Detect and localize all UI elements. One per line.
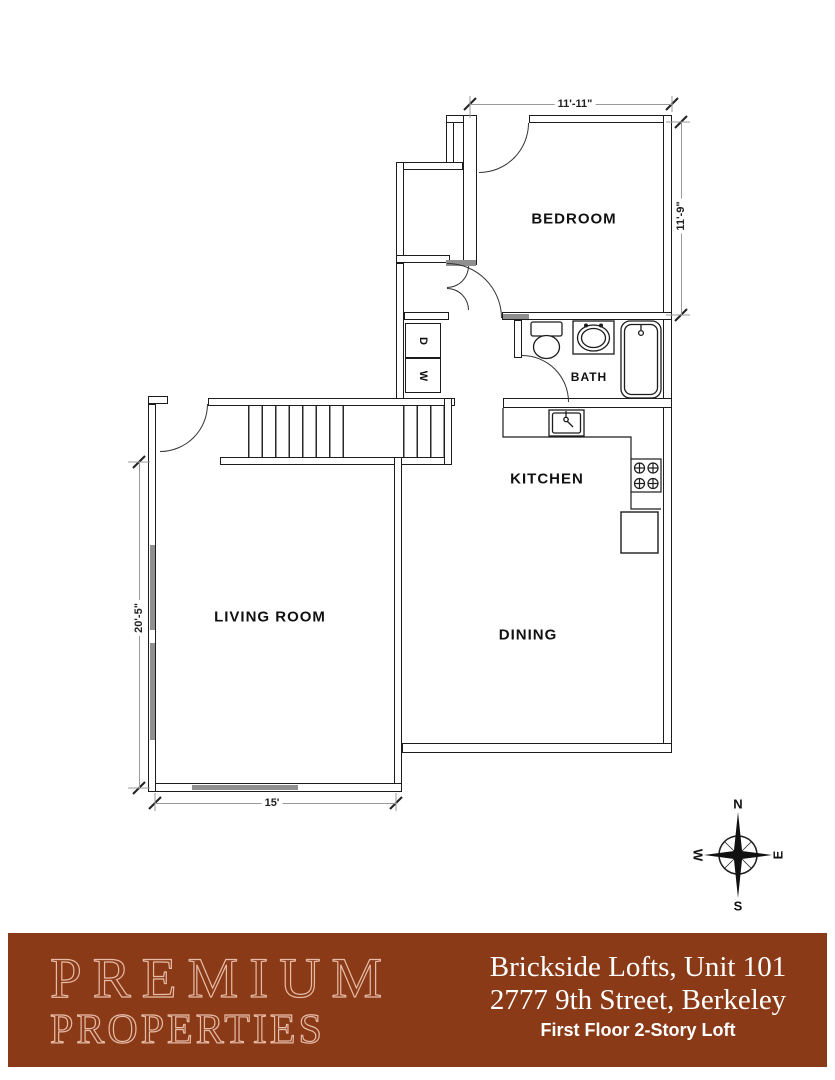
listing-subtitle: First Floor 2-Story Loft: [463, 1020, 813, 1041]
window: [192, 785, 298, 790]
compass-east-label: E: [771, 851, 786, 860]
stair-top-rail: [208, 398, 455, 406]
wall: [148, 396, 168, 404]
listing-title-block: Brickside Lofts, Unit 101 2777 9th Stree…: [463, 951, 813, 1041]
stair-treads: [403, 406, 444, 457]
wall: [663, 115, 672, 753]
washer-label: W: [417, 371, 429, 381]
stair-bottom-rail: [220, 457, 445, 465]
dimension-living-depth: 20'-5": [133, 600, 145, 636]
brand-name-line2: PROPERTIES: [50, 1009, 393, 1051]
entry-door-arc: [160, 404, 208, 452]
wall: [404, 312, 449, 320]
wall: [396, 263, 404, 406]
wall: [396, 162, 404, 265]
stair-treads: [248, 406, 354, 457]
toilet: [531, 322, 562, 359]
page: D W: [0, 0, 835, 1080]
stove: [631, 459, 661, 492]
brand-name-line1: PREMIUM: [50, 950, 393, 1007]
wall: [396, 255, 450, 263]
compass-west-label: W: [691, 849, 706, 861]
wall: [446, 122, 454, 166]
bathtub: [621, 321, 661, 398]
dimension-living-width: 15': [262, 797, 283, 809]
compass-south-label: S: [734, 899, 743, 914]
room-label-bath: BATH: [571, 370, 607, 384]
wall: [514, 320, 522, 358]
dryer-label: D: [417, 337, 429, 345]
room-label-living: LIVING ROOM: [214, 609, 326, 626]
window: [150, 545, 155, 630]
dimension-bedroom-depth: 11'-9": [675, 198, 687, 233]
window: [150, 643, 155, 740]
wall: [394, 457, 402, 792]
wall: [402, 743, 672, 753]
wall: [396, 162, 463, 170]
bath-door-arc: [522, 355, 569, 402]
wall: [463, 115, 477, 265]
wall: [444, 398, 452, 465]
kitchen-counter: [503, 408, 661, 509]
listing-title: Brickside Lofts, Unit 101: [463, 951, 813, 984]
bedroom-door-arc: [479, 123, 529, 173]
kitchen-sink: [549, 410, 584, 436]
compass-rose-icon: [704, 812, 772, 898]
listing-address: 2777 9th Street, Berkeley: [463, 984, 813, 1017]
banner: PREMIUM PROPERTIES Brickside Lofts, Unit…: [8, 933, 827, 1067]
wall: [529, 115, 672, 123]
door-header: [503, 314, 529, 319]
dimension-bedroom-width: 11'-11": [555, 98, 596, 110]
compass-north-label: N: [733, 797, 742, 812]
room-label-dining: DINING: [499, 627, 558, 644]
room-label-kitchen: KITCHEN: [510, 471, 584, 488]
room-label-bedroom: BEDROOM: [531, 211, 616, 228]
bathroom-sink: [573, 321, 614, 354]
refrigerator: [621, 512, 658, 553]
brand-logo: PREMIUM PROPERTIES: [50, 950, 393, 1051]
